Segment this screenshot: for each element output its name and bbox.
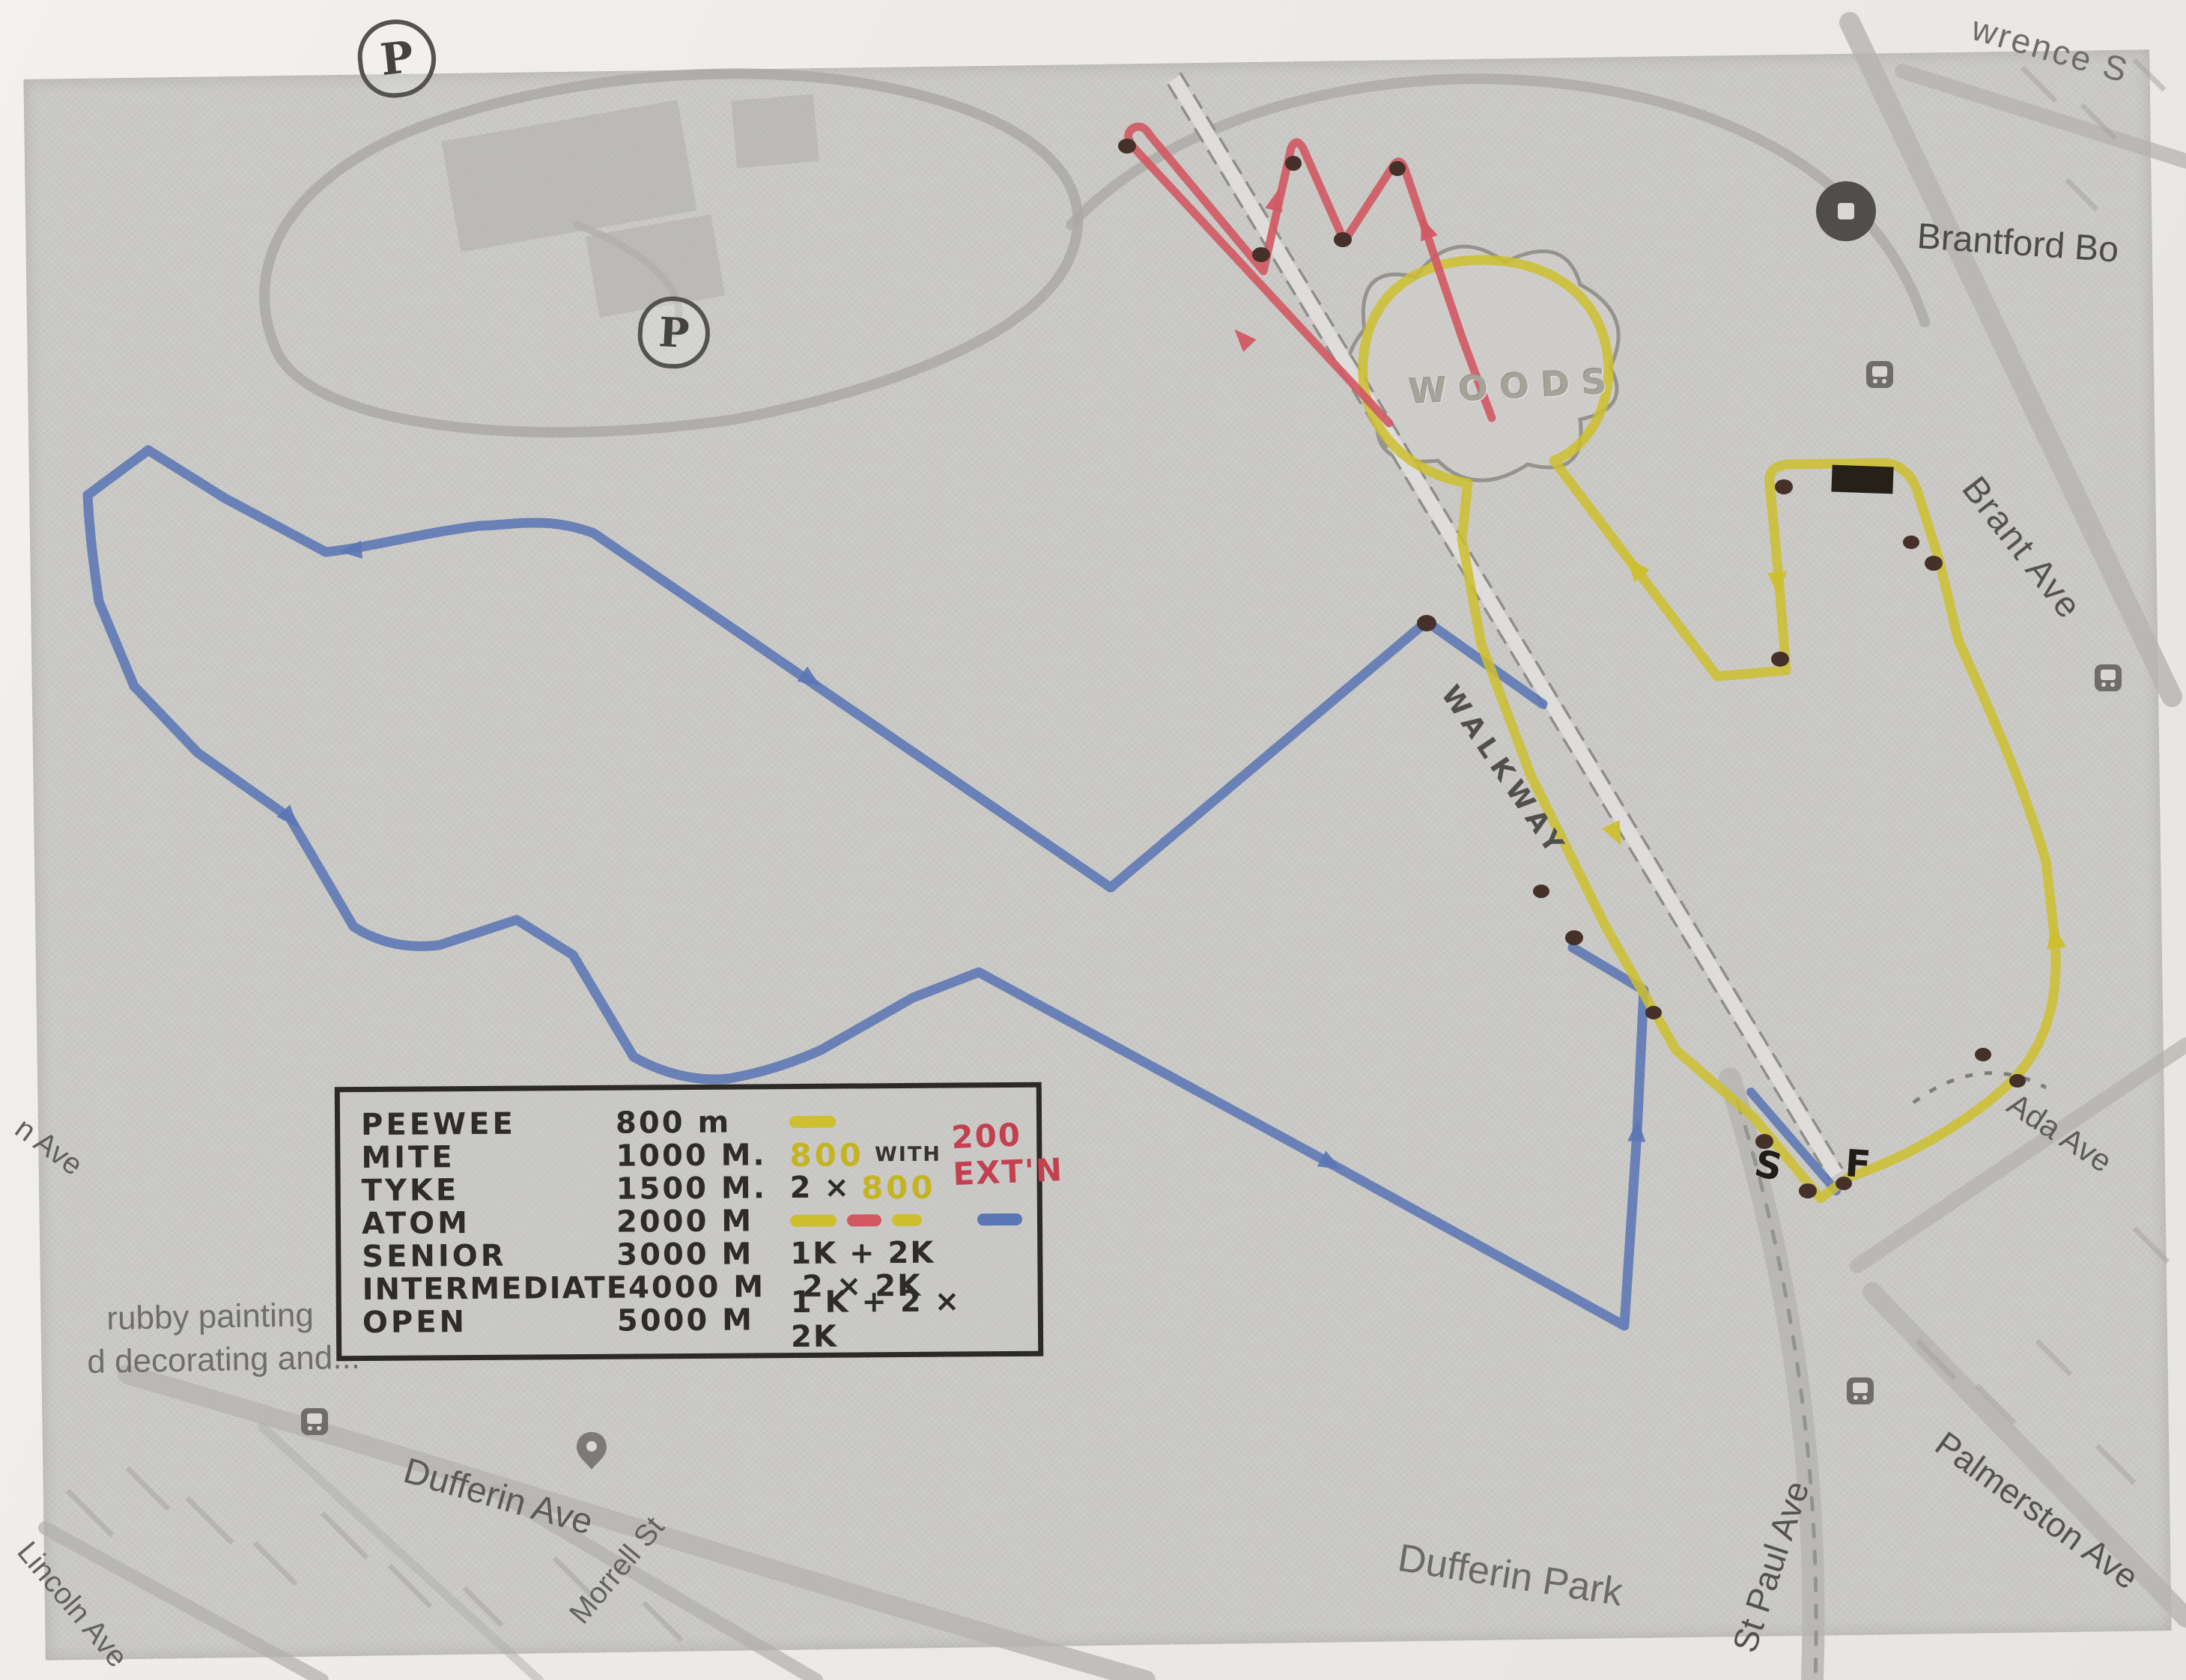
marker-dot xyxy=(1565,930,1583,945)
category-note: 2 × 800 xyxy=(790,1168,936,1206)
with-text: WITH xyxy=(875,1142,941,1166)
marker-dot xyxy=(1533,885,1549,898)
red-route-swatch xyxy=(847,1214,881,1226)
finish-letter: F xyxy=(1844,1141,1872,1186)
building-footprints xyxy=(441,94,819,318)
parking-letter: P xyxy=(658,308,690,357)
marker-dot xyxy=(1118,139,1136,154)
category-name: INTERMEDIATE xyxy=(362,1271,628,1307)
marker-dot xyxy=(1252,247,1270,262)
marker-dot xyxy=(1771,652,1789,667)
red-extension-text: 200 EXT'N xyxy=(950,1115,1064,1192)
marker-dot xyxy=(1645,1006,1662,1019)
building xyxy=(731,94,819,168)
poi-pin-icon xyxy=(577,1432,607,1470)
red-arrow xyxy=(1228,323,1257,351)
marker-dot xyxy=(1334,232,1352,247)
route-arrows xyxy=(276,187,2065,1177)
yellow-arrow xyxy=(1767,571,1789,597)
transit-icon xyxy=(1866,361,1893,388)
category-note: 1K + 2K xyxy=(790,1236,935,1271)
scanned-course-map-photo: wrence S Brantford Bo Brant Ave Ada Ave … xyxy=(0,0,2186,1680)
yellow-800-text: 800 xyxy=(789,1136,864,1174)
marker-dot xyxy=(2009,1074,2026,1088)
brant-ave-road xyxy=(1850,22,2172,697)
lawrence-st-road xyxy=(1902,71,2186,161)
legend-row-atom: ATOM 2000 M xyxy=(362,1203,1016,1240)
yellow-route-swatch xyxy=(892,1214,922,1226)
category-distance: 2000 M xyxy=(616,1204,790,1240)
marker-dot xyxy=(1389,161,1406,176)
category-name: MITE xyxy=(361,1139,616,1175)
marker-dot xyxy=(1417,615,1436,631)
yellow-route-swatch xyxy=(790,1215,837,1227)
brantford-poi-icon xyxy=(1816,181,1876,241)
transit-icon xyxy=(1847,1377,1874,1404)
marker-dot xyxy=(1925,556,1943,571)
marker-dot xyxy=(1903,536,1919,549)
category-distance: 1000 M. xyxy=(616,1138,789,1174)
category-distance: 3000 M xyxy=(616,1237,790,1273)
category-note: 1 K + 2 × 2K xyxy=(791,1284,1018,1354)
marker-dot xyxy=(1799,1183,1817,1198)
map-drawing-layer xyxy=(0,0,2186,1680)
category-name: SENIOR xyxy=(362,1238,616,1274)
category-note xyxy=(790,1213,1022,1227)
marker-dot xyxy=(1975,1048,1991,1061)
transit-icon xyxy=(301,1408,328,1435)
transit-icon xyxy=(2095,664,2122,691)
category-name: OPEN xyxy=(362,1304,617,1340)
course-legend-box: PEEWEE 800 m MITE 1000 M. 800 WITH 200 E… xyxy=(335,1082,1044,1362)
category-name: TYKE xyxy=(362,1172,616,1208)
category-distance: 5000 M xyxy=(617,1303,791,1338)
blue-route-swatch xyxy=(977,1213,1022,1225)
category-distance: 800 m xyxy=(616,1105,789,1141)
legend-row-senior: SENIOR 3000 M 1K + 2K xyxy=(362,1236,1016,1273)
marker-dot xyxy=(1285,156,1302,171)
printed-roads xyxy=(45,22,2186,1680)
business-label-line2: d decorating and... xyxy=(87,1339,360,1381)
times-prefix: 2 × xyxy=(790,1170,851,1205)
category-distance: 1500 M. xyxy=(616,1171,790,1207)
marker-dot xyxy=(1775,479,1793,494)
legend-row-open: OPEN 5000 M 1 K + 2 × 2K xyxy=(362,1302,1017,1339)
legend-row-tyke: TYKE 1500 M. 2 × 800 xyxy=(362,1170,1016,1207)
category-name: ATOM xyxy=(362,1205,616,1241)
yellow-800-text: 800 xyxy=(861,1168,936,1206)
category-name: PEEWEE xyxy=(361,1106,616,1142)
category-distance: 4000 M xyxy=(628,1270,802,1306)
blue-arrow xyxy=(1627,1118,1647,1141)
route-marker-box xyxy=(1831,465,1893,494)
parking-letter: P xyxy=(378,31,416,85)
business-label-line1: rubby painting xyxy=(106,1297,314,1338)
